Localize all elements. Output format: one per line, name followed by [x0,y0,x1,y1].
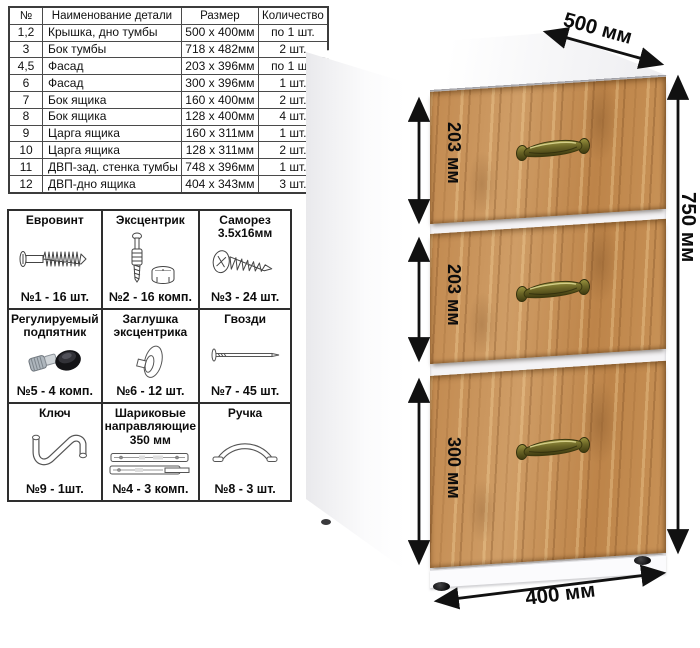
drawer-handle [515,435,591,462]
cell-size: 128 х 311мм [181,142,258,159]
drawer-2 [430,219,666,364]
hardware-title: Гвозди [224,313,266,326]
cell-num: 4,5 [9,58,43,75]
hardware-title: Ручка [228,407,262,420]
cell-name: ДВП-зад. стенка тумбы [43,159,182,176]
cell-size: 404 х 343мм [181,175,258,192]
table-row: 10Царга ящика128 х 311мм2 шт. [9,142,328,159]
parts-table-header-row: № Наименование детали Размер Количество [9,7,328,24]
cell-size: 160 х 311мм [181,125,258,142]
table-row: 4,5Фасад203 х 396ммпо 1 шт. [9,58,328,75]
drawer1-height-label: 203 мм [443,122,464,184]
self-tapping-screw-icon [212,241,278,290]
table-row: 8Бок ящика128 х 400мм4 шт. [9,108,328,125]
hardware-item-euro-screw: Евровинт №1 - 16 шт. [9,211,101,308]
hex-key-icon [22,420,88,482]
table-row: 3Бок тумбы718 х 482мм2 шт. [9,41,328,58]
cell-size: 128 х 400мм [181,108,258,125]
hardware-count: №4 - 3 комп. [112,482,188,496]
cell-num: 3 [9,41,43,58]
handle-icon [210,420,280,482]
drawer-handle [515,277,591,304]
col-header-size: Размер [181,7,258,24]
cell-num: 9 [9,125,43,142]
cell-qty: по 1 шт. [258,24,328,41]
hardware-title: Шариковые направляющие 350 мм [105,407,196,447]
col-header-name: Наименование детали [43,7,182,24]
drawer-handle [515,136,591,163]
hardware-count: №3 - 24 шт. [211,290,279,304]
nail-icon [209,326,281,383]
table-row: 1,2Крышка, дно тумбы500 х 400ммпо 1 шт. [9,24,328,41]
cell-size: 203 х 396мм [181,58,258,75]
col-header-num: № [9,7,43,24]
hardware-title: Саморез 3.5х16мм [202,214,288,241]
cell-name: Бок ящика [43,91,182,108]
cell-size: 500 х 400мм [181,24,258,41]
hardware-count: №9 - 1шт. [26,482,84,496]
hardware-count: №5 - 4 комп. [17,384,93,398]
hardware-item-self-tapping-screw: Саморез 3.5х16мм №3 - 24 шт. [200,211,290,308]
parts-table: № Наименование детали Размер Количество … [8,6,329,194]
cell-num: 11 [9,159,43,176]
dimension-height-label: 750 мм [676,192,700,262]
adjustable-foot-icon [27,340,83,384]
table-row: 11ДВП-зад. стенка тумбы748 х 396мм1 шт. [9,159,328,176]
cell-size: 718 х 482мм [181,41,258,58]
cell-num: 7 [9,91,43,108]
cell-name: ДВП-дно ящика [43,175,182,192]
hardware-item-cam-lock: Эксцентрик [103,211,198,308]
hardware-count: №2 - 16 комп. [109,290,192,304]
cell-name: Фасад [43,58,182,75]
cell-name: Бок тумбы [43,41,182,58]
cell-name: Царга ящика [43,125,182,142]
cell-size: 300 х 396мм [181,75,258,92]
cell-num: 12 [9,175,43,192]
cell-num: 10 [9,142,43,159]
drawer-1 [430,77,666,224]
cell-size: 748 х 396мм [181,159,258,176]
hardware-count: №1 - 16 шт. [21,290,89,304]
drawer2-height-label: 203 мм [443,264,464,326]
hardware-count: №6 - 12 шт. [116,384,184,398]
dimension-width-label: 400 мм [524,578,597,610]
cabinet-side-face [306,52,430,588]
cam-lock-icon [121,227,179,290]
cam-cap-icon [130,340,170,384]
euro-screw-icon [18,227,92,290]
hardware-item-adjustable-foot: Регулируемый подпятник [9,310,101,402]
hardware-title: Регулируемый подпятник [11,313,99,340]
drawer3-height-label: 300 мм [443,437,464,499]
hardware-item-cam-cap: Заглушка эксцентрика №6 - 12 шт. [103,310,198,402]
cabinet-foot [433,582,450,591]
table-row: 9Царга ящика160 х 311мм1 шт. [9,125,328,142]
cell-name: Фасад [43,75,182,92]
col-header-qty: Количество [258,7,328,24]
table-row: 6Фасад300 х 396мм1 шт. [9,75,328,92]
cell-num: 6 [9,75,43,92]
hardware-title: Заглушка эксцентрика [105,313,196,340]
cell-num: 8 [9,108,43,125]
hardware-item-key: Ключ №9 - 1шт. [9,404,101,500]
table-row: 12ДВП-дно ящика404 х 343мм3 шт. [9,175,328,192]
hardware-item-handle: Ручка №8 - 3 шт. [200,404,290,500]
ball-slides-icon [109,447,191,482]
cell-name: Царга ящика [43,142,182,159]
hardware-count: №7 - 45 шт. [211,384,279,398]
cell-size: 160 х 400мм [181,91,258,108]
cell-num: 1,2 [9,24,43,41]
cell-name: Бок ящика [43,108,182,125]
hardware-title: Эксцентрик [116,214,185,227]
table-row: 7Бок ящика160 х 400мм2 шт. [9,91,328,108]
hardware-item-ball-slides: Шариковые направляющие 350 мм [103,404,198,500]
hardware-title: Ключ [39,407,71,420]
hardware-item-nail: Гвозди №7 - 45 шт. [200,310,290,402]
cabinet-front-face [430,75,666,588]
hardware-grid: Евровинт №1 - 16 шт. Эксцентрик [7,209,292,502]
cell-name: Крышка, дно тумбы [43,24,182,41]
hardware-title: Евровинт [26,214,84,227]
drawer-3 [430,361,666,568]
cabinet-foot-rear [321,519,331,525]
hardware-count: №8 - 3 шт. [214,482,275,496]
cabinet-foot [634,556,651,565]
